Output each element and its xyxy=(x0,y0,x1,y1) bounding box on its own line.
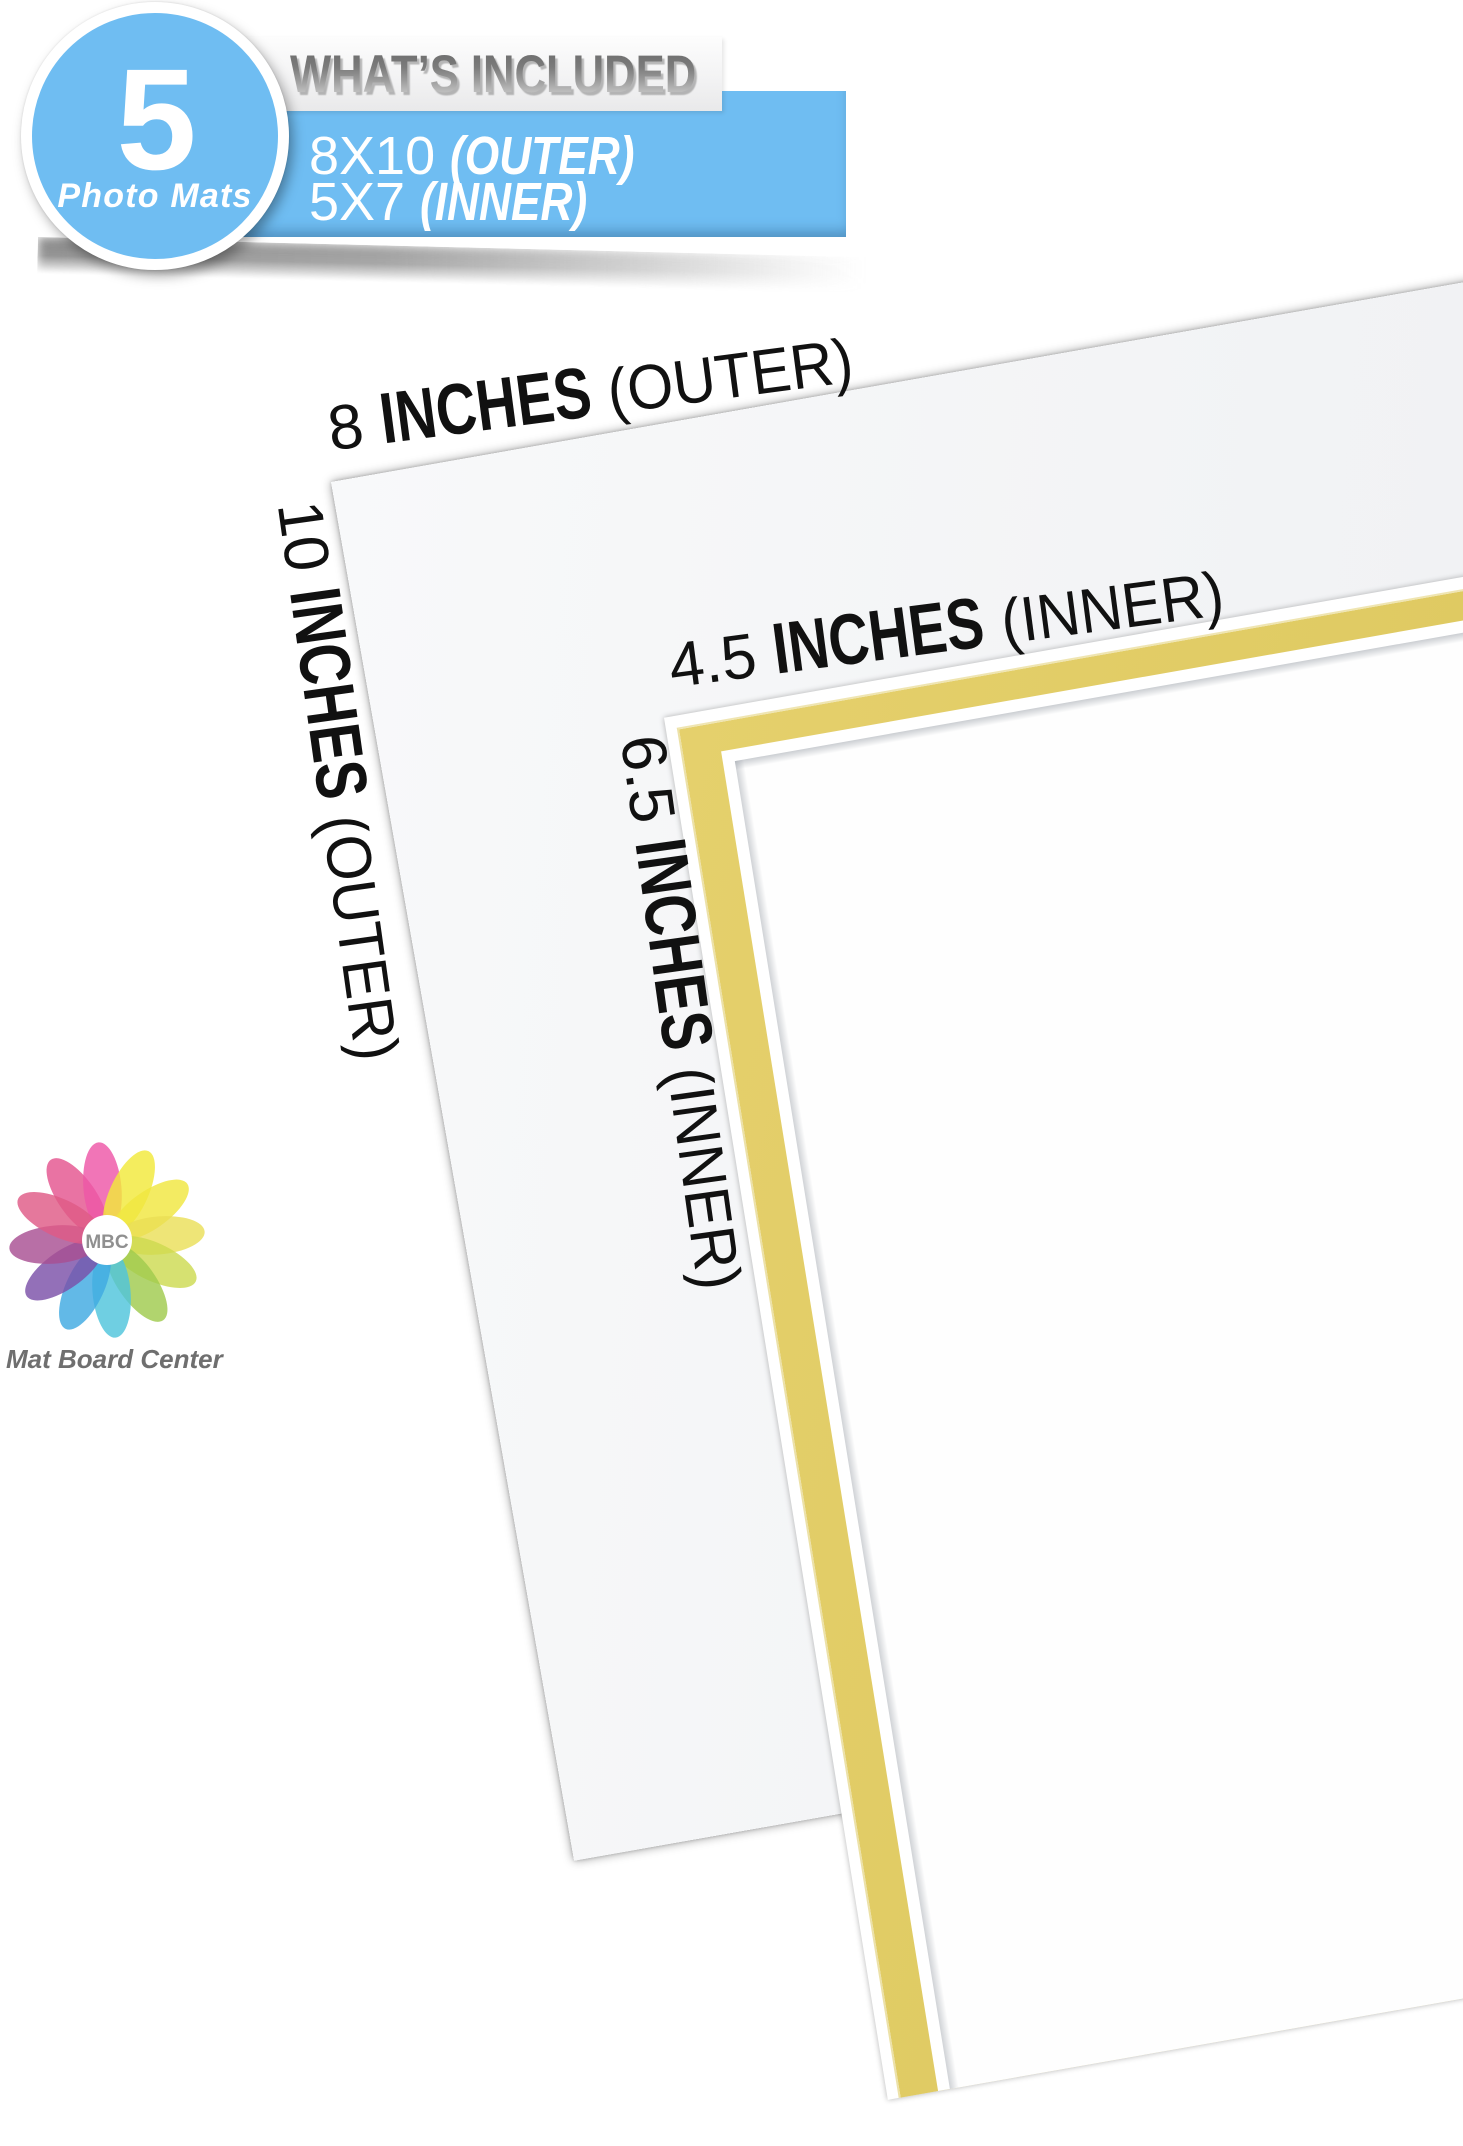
svg-text:MBC: MBC xyxy=(85,1232,129,1253)
